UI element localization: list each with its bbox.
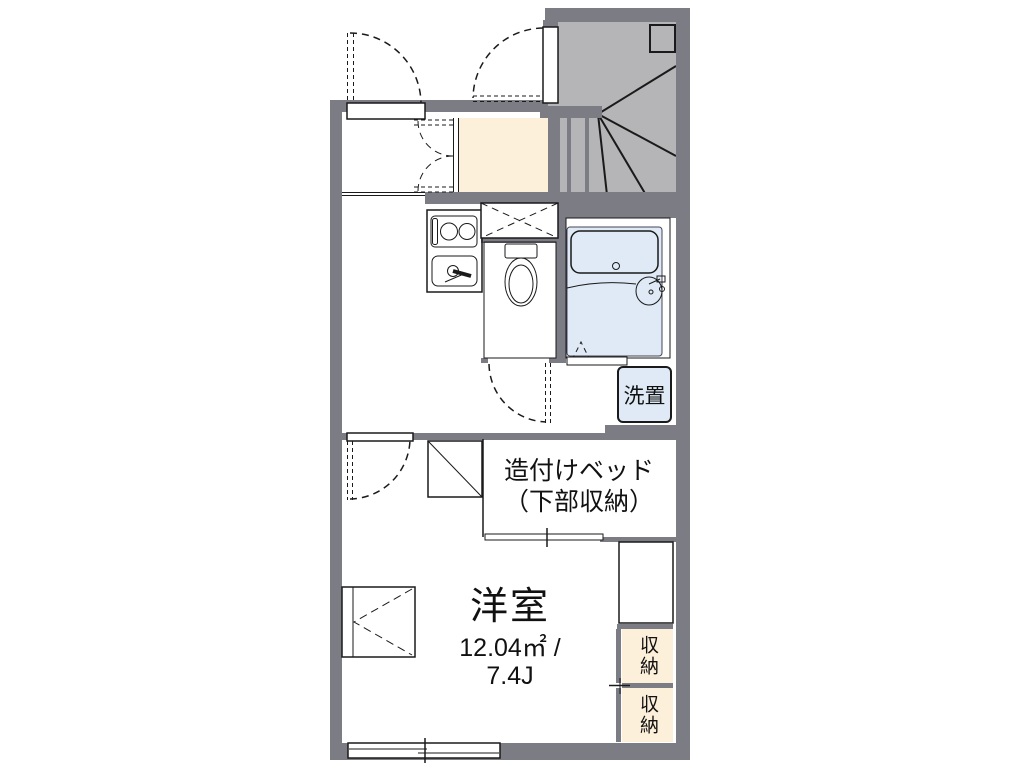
toilet-icon [505, 244, 537, 306]
door-leaf [347, 103, 425, 119]
kitchen-unit [427, 210, 482, 292]
wall [676, 8, 690, 760]
bed-side-nook [619, 542, 673, 623]
floorplan-canvas: 洗置 収納 収納 造付けベッド （下部収納） 洋室 12.04㎡ / 7.4J [0, 0, 1017, 772]
toilet-door [489, 363, 551, 424]
closet-chevron-box [342, 587, 415, 657]
unit-entry-door [347, 33, 425, 119]
storage-top-label: 収納 [634, 635, 661, 677]
built-in-bed-label: 造付けベッド （下部収納） [488, 456, 670, 519]
wall [556, 204, 676, 218]
stair-pipe-space [650, 25, 675, 52]
refrigerator-space [428, 441, 482, 497]
room-name: 洋室 [420, 586, 600, 630]
wall [548, 112, 560, 195]
understair-storage-doors [414, 120, 453, 192]
washing-machine-label: 洗置 [624, 380, 666, 410]
storage-bottom: 収納 [622, 688, 673, 742]
washing-machine-space: 洗置 [617, 366, 672, 423]
wall [545, 8, 690, 22]
wall [616, 688, 621, 742]
wall [616, 629, 621, 683]
stair-tread [567, 118, 571, 195]
bath-door-sill [567, 357, 627, 365]
wall [330, 100, 342, 760]
understair-storage-floor [459, 118, 548, 192]
cross-marked-space [481, 203, 558, 238]
entry-step-edge [342, 118, 459, 196]
door-leaf [543, 27, 558, 103]
bed-sub: （下部収納） [488, 487, 670, 518]
wall [540, 106, 602, 118]
wall [481, 358, 488, 363]
storage-bottom-label: 収納 [634, 694, 661, 736]
stair-entry-door [473, 27, 558, 103]
storage-top: 収納 [622, 629, 673, 683]
door-leaf [347, 433, 413, 441]
stove-icon [431, 216, 477, 247]
toilet-room [484, 242, 556, 358]
sink-icon [432, 256, 477, 286]
bed-name: 造付けベッド [488, 456, 670, 487]
western-room-label: 洋室 12.04㎡ / 7.4J [420, 586, 600, 691]
bathroom [566, 218, 670, 365]
room-area: 12.04㎡ / [420, 634, 600, 663]
stair-tread [585, 118, 589, 195]
wall [549, 358, 558, 363]
room-tatami: 7.4J [420, 662, 600, 691]
bedroom-door [347, 433, 413, 500]
